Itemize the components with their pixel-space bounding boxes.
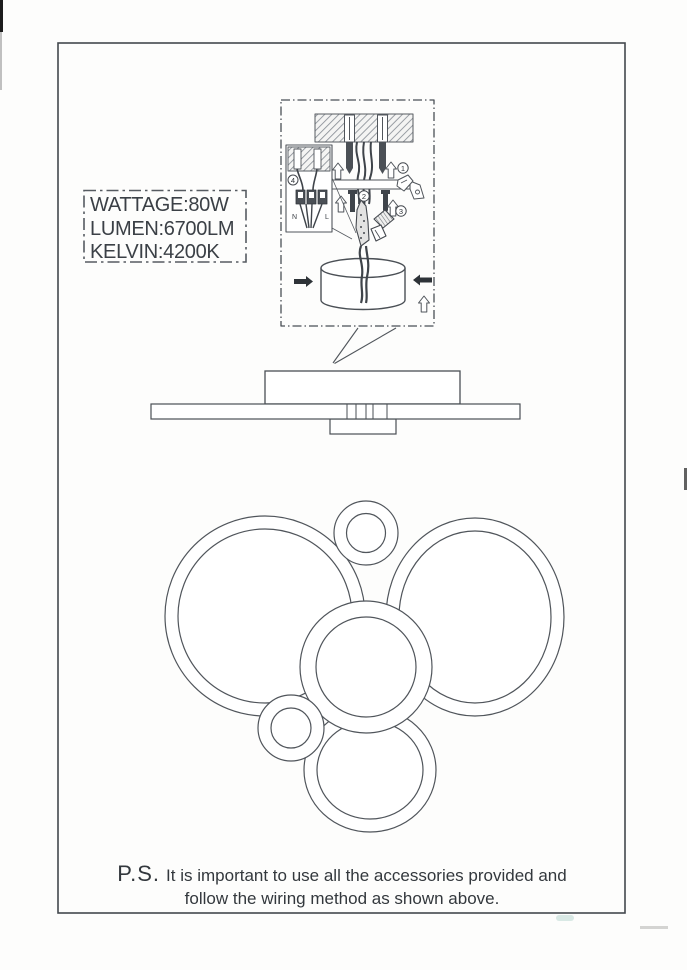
ps-prefix: P.S. [117, 861, 160, 886]
fixture-side-view [151, 371, 520, 434]
ceiling-hatch [315, 114, 413, 142]
step-badge-1: 1 [398, 163, 408, 173]
side-screw-left [294, 276, 313, 287]
svg-text:3: 3 [399, 207, 403, 216]
terminal-block [296, 190, 327, 204]
scan-artifact-teal [556, 915, 574, 921]
ring-top-small [347, 514, 386, 553]
spec-line-kelvin: KELVIN:4200K [90, 241, 246, 265]
ceiling-anchor-right [378, 115, 388, 174]
instruction-sheet-page: N L 1 2 3 [0, 0, 687, 970]
side-screw-right [413, 275, 432, 286]
ring-center [316, 617, 416, 717]
spec-line-lumen: LUMEN:6700LM [90, 218, 246, 242]
svg-text:2: 2 [362, 192, 366, 201]
arm-bar [151, 404, 520, 419]
ps-note-line2: follow the wiring method as shown above. [92, 888, 592, 910]
wiring-inset: N L 1 2 3 [281, 100, 434, 326]
step-badge-4: 4 [288, 175, 298, 185]
scan-artifact-edge-top [0, 0, 3, 32]
terminal-detail-box: N L [286, 145, 356, 239]
ring-bottom [317, 721, 423, 819]
ring-left-small [271, 708, 311, 748]
terminal-label-l: L [325, 214, 329, 221]
driver-box [330, 419, 396, 434]
ceiling-anchor-left [345, 115, 355, 174]
ps-note: P.S.It is important to use all the acces… [92, 862, 592, 910]
callout-tail [333, 328, 396, 364]
scan-artifact-edge-mid [0, 32, 2, 90]
spec-box: WATTAGE:80W LUMEN:6700LM KELVIN:4200K [90, 194, 246, 265]
scan-artifact-bottom [640, 926, 668, 929]
instruction-diagram: N L 1 2 3 [0, 0, 687, 970]
ps-note-line1: It is important to use all the accessori… [166, 866, 567, 885]
spec-line-wattage: WATTAGE:80W [90, 194, 246, 218]
svg-text:4: 4 [291, 176, 295, 185]
rings-top-view [165, 501, 564, 832]
step-badge-2: 2 [359, 191, 369, 201]
svg-text:1: 1 [401, 164, 405, 173]
step-badge-3: 3 [396, 206, 406, 216]
canopy-side [265, 371, 460, 404]
terminal-label-n: N [292, 214, 297, 221]
